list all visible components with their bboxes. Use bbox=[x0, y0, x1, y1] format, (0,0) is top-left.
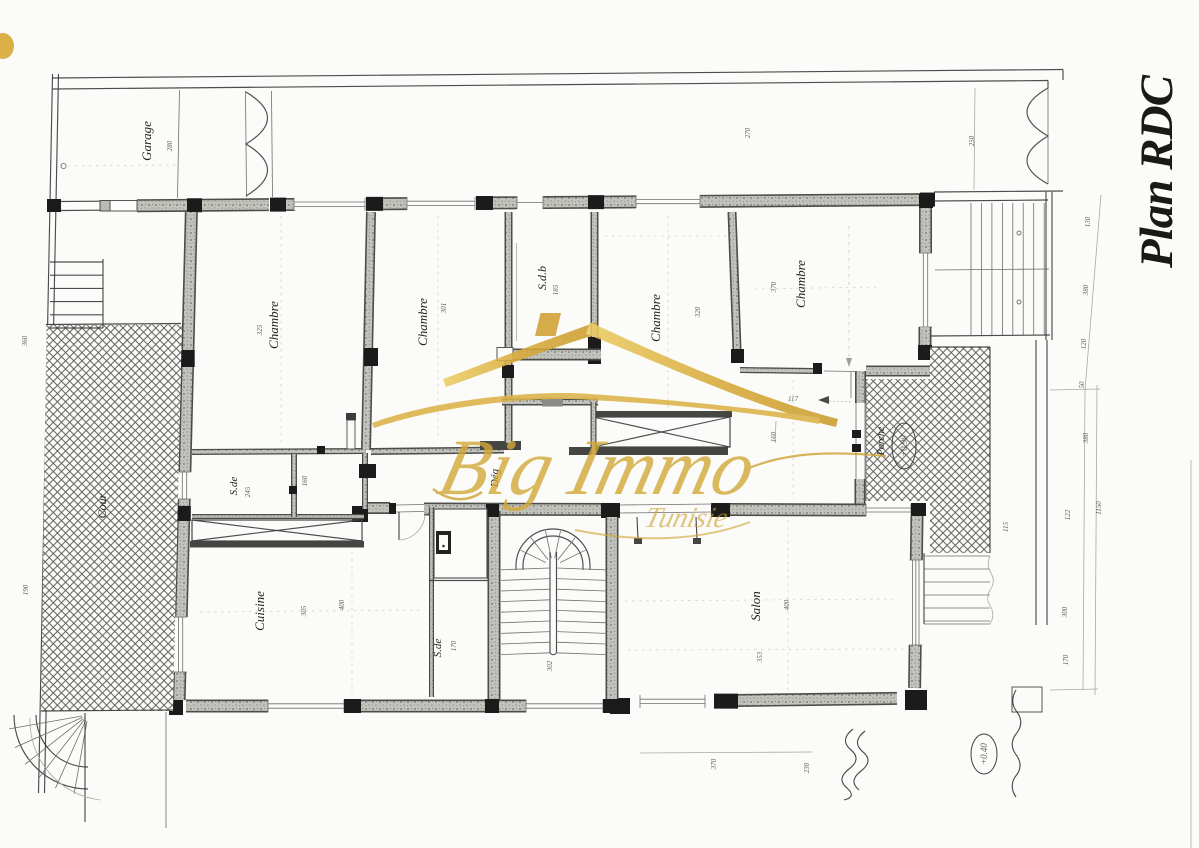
svg-text:270: 270 bbox=[744, 127, 752, 138]
svg-text:50: 50 bbox=[1078, 381, 1086, 389]
svg-text:370: 370 bbox=[770, 281, 778, 293]
svg-text:280: 280 bbox=[166, 140, 174, 151]
svg-text:370: 370 bbox=[710, 758, 718, 770]
svg-text:122: 122 bbox=[1064, 509, 1072, 520]
svg-text:Cuisine: Cuisine bbox=[252, 591, 267, 631]
svg-text:S.de: S.de bbox=[432, 639, 444, 658]
svg-text:Cour: Cour bbox=[95, 493, 109, 518]
svg-text:185: 185 bbox=[552, 284, 560, 295]
svg-text:1150: 1150 bbox=[1095, 501, 1103, 515]
svg-text:Chambre: Chambre bbox=[648, 294, 663, 342]
svg-text:380: 380 bbox=[1082, 432, 1090, 444]
svg-text:Chambre: Chambre bbox=[266, 301, 281, 349]
svg-text:305: 305 bbox=[300, 605, 308, 617]
svg-text:Porche: Porche bbox=[876, 426, 887, 456]
svg-text:S.de: S.de bbox=[228, 477, 240, 496]
svg-text:+0.40: +0.40 bbox=[979, 743, 989, 765]
svg-text:+0.90: +0.90 bbox=[899, 435, 909, 457]
svg-text:S.d.b: S.d.b bbox=[535, 266, 549, 290]
svg-text:115: 115 bbox=[1002, 522, 1010, 532]
svg-text:190: 190 bbox=[22, 584, 30, 595]
svg-text:Tunisie: Tunisie bbox=[641, 502, 731, 534]
svg-text:380: 380 bbox=[1082, 284, 1090, 296]
svg-text:130: 130 bbox=[1084, 216, 1092, 227]
svg-text:230: 230 bbox=[803, 762, 811, 773]
svg-text:Garage: Garage bbox=[139, 121, 154, 161]
svg-text:400: 400 bbox=[783, 599, 791, 610]
svg-text:170: 170 bbox=[450, 640, 458, 651]
svg-text:400: 400 bbox=[338, 599, 346, 610]
svg-text:360: 360 bbox=[21, 335, 29, 347]
svg-text:320: 320 bbox=[694, 306, 702, 318]
svg-text:Chambre: Chambre bbox=[415, 298, 430, 346]
svg-text:160: 160 bbox=[770, 431, 778, 442]
svg-text:353: 353 bbox=[756, 651, 764, 663]
svg-text:170: 170 bbox=[1062, 654, 1070, 665]
svg-text:Plan RDC: Plan RDC bbox=[1131, 74, 1183, 269]
svg-text:Chambre: Chambre bbox=[793, 260, 808, 308]
svg-text:Salon: Salon bbox=[748, 591, 763, 621]
svg-text:120: 120 bbox=[1080, 338, 1088, 349]
svg-text:300: 300 bbox=[1061, 606, 1069, 618]
svg-text:302: 302 bbox=[546, 660, 554, 672]
svg-text:Big Immo: Big Immo bbox=[431, 423, 765, 512]
svg-text:250: 250 bbox=[968, 135, 976, 146]
svg-text:301: 301 bbox=[440, 303, 448, 315]
svg-text:160: 160 bbox=[301, 475, 309, 486]
svg-text:245: 245 bbox=[244, 486, 252, 497]
svg-text:325: 325 bbox=[256, 324, 264, 336]
